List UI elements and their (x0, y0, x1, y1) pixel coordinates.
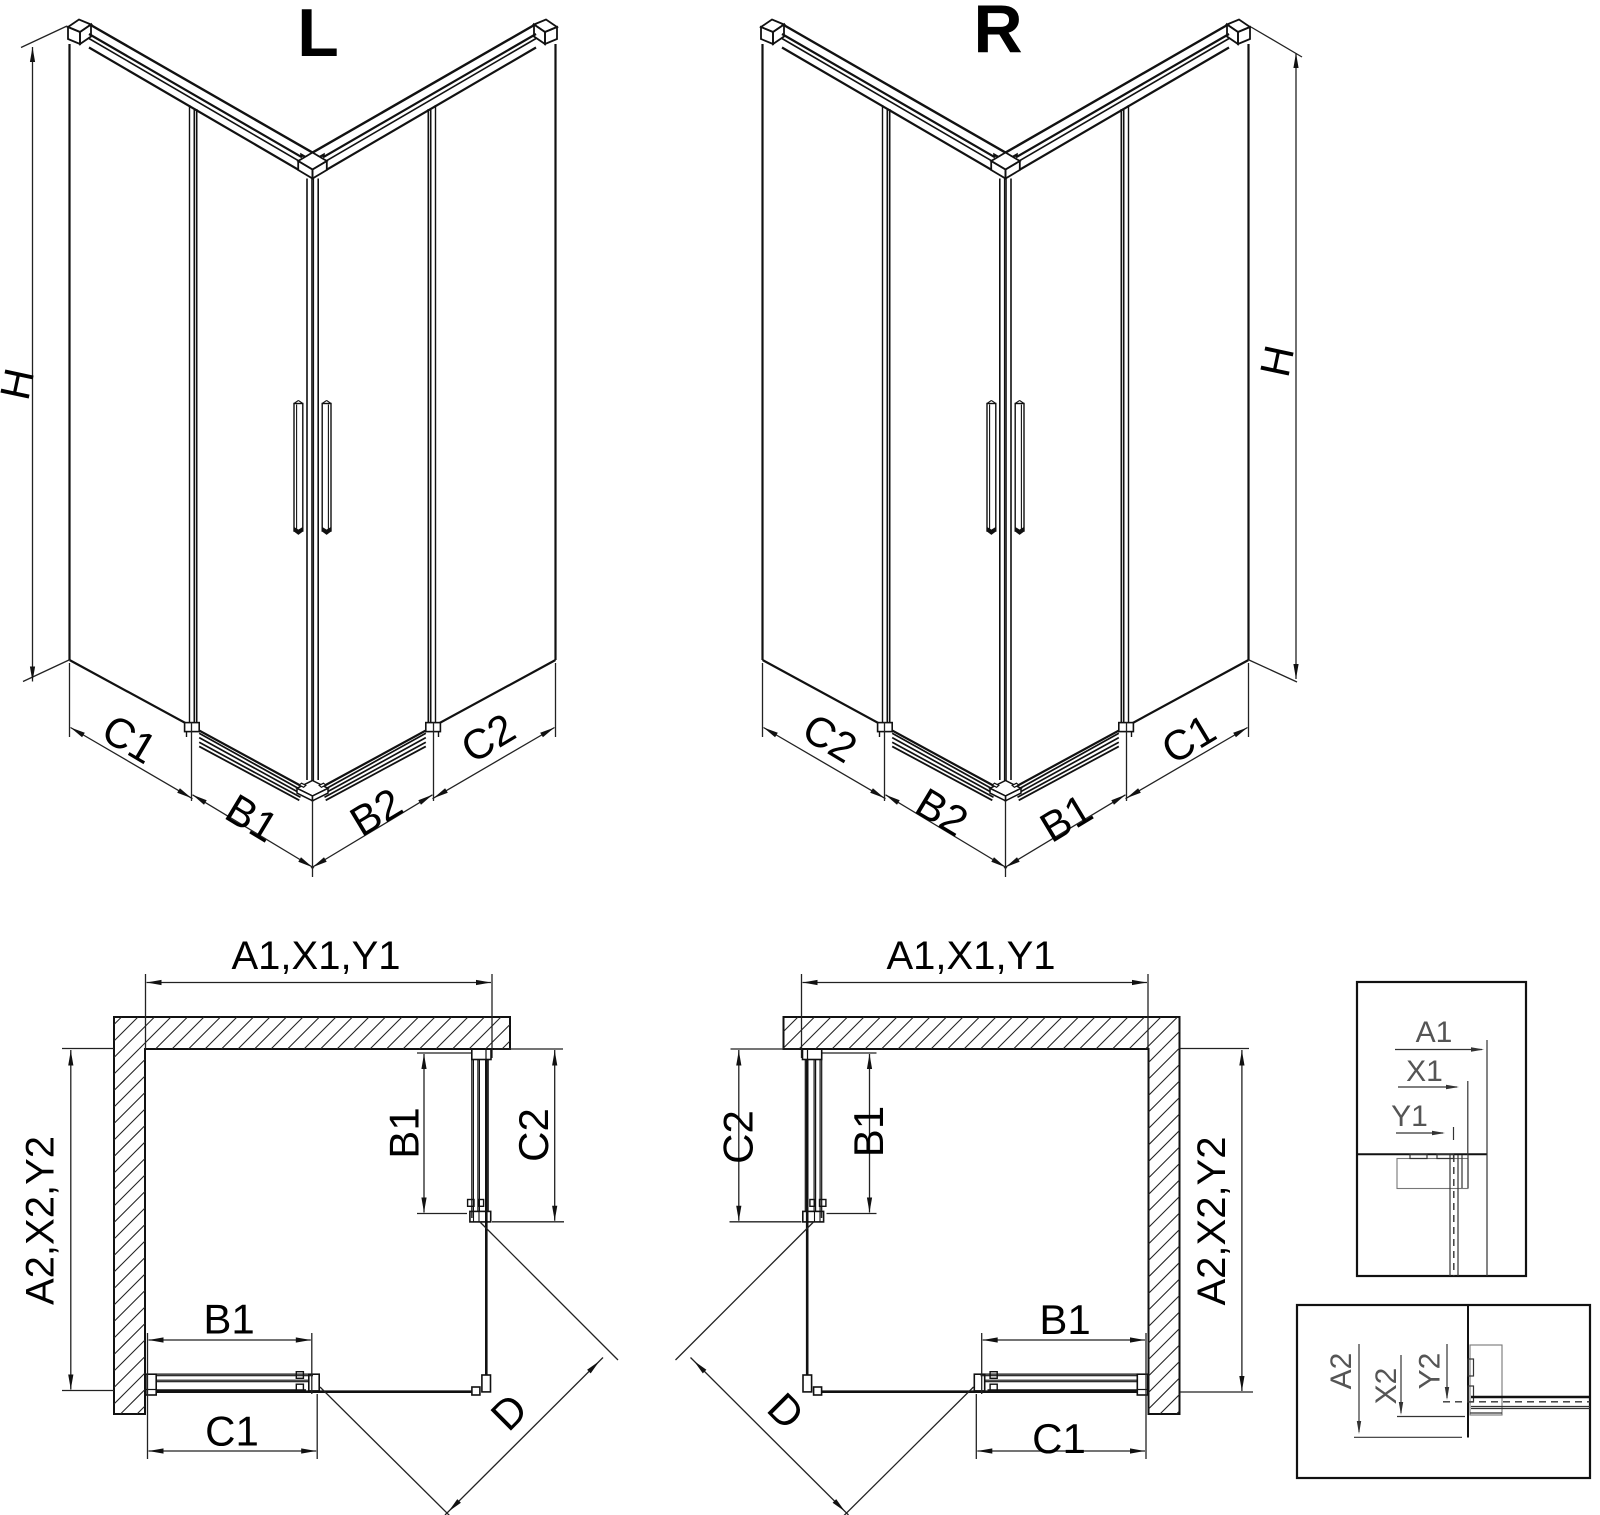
svg-text:X1: X1 (1406, 1055, 1443, 1088)
svg-text:C1: C1 (1032, 1415, 1086, 1462)
svg-text:B1: B1 (381, 1107, 428, 1158)
svg-text:A2,X2,Y2: A2,X2,Y2 (19, 1136, 63, 1305)
svg-text:C2: C2 (715, 1110, 762, 1164)
svg-text:Y1: Y1 (1391, 1100, 1428, 1133)
svg-text:A1,X1,Y1: A1,X1,Y1 (886, 934, 1055, 978)
svg-text:R: R (973, 0, 1022, 67)
svg-text:B1: B1 (1039, 1296, 1090, 1343)
svg-text:C2: C2 (510, 1108, 557, 1162)
svg-text:Y2: Y2 (1414, 1353, 1447, 1390)
svg-text:B1: B1 (203, 1296, 254, 1343)
svg-text:L: L (297, 0, 339, 71)
svg-text:A2,X2,Y2: A2,X2,Y2 (1190, 1136, 1234, 1305)
svg-text:B1: B1 (845, 1106, 892, 1157)
svg-text:X2: X2 (1370, 1368, 1403, 1405)
svg-text:A2: A2 (1325, 1353, 1358, 1390)
svg-text:A1: A1 (1416, 1016, 1453, 1049)
svg-text:A1,X1,Y1: A1,X1,Y1 (231, 934, 400, 978)
svg-text:C1: C1 (205, 1408, 259, 1455)
